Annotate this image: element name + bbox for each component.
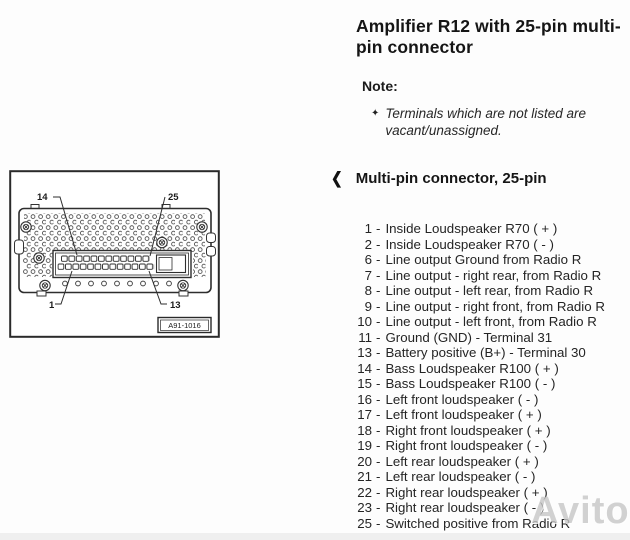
pin-number: 1 (350, 221, 372, 237)
pin-description: Line output - left front, from Radio R (385, 314, 596, 330)
callout-13: 13 (170, 300, 181, 311)
pin-separator: - (376, 392, 380, 408)
pin-separator: - (376, 314, 380, 330)
pin-number: 19 (350, 438, 372, 454)
pin-row: 8 - Line output - left rear, from Radio … (350, 283, 630, 299)
pin-number: 10 (350, 314, 372, 330)
pin-row: 9 - Line output - right front, from Radi… (350, 299, 630, 315)
pin-number: 23 (350, 500, 372, 516)
screw-icon (197, 222, 207, 232)
pin-number: 21 (350, 469, 372, 485)
pin-description: Right front loudspeaker ( + ) (385, 423, 550, 439)
left-arrow-icon: ❮ (331, 169, 343, 189)
pin-description: Right front loudspeaker ( - ) (385, 438, 547, 454)
pin-separator: - (376, 516, 380, 532)
pin-separator: - (376, 330, 380, 346)
pin-number: 11 (350, 330, 372, 346)
pin-separator: - (376, 361, 380, 377)
pin-description: Inside Loudspeaker R70 ( + ) (385, 221, 557, 237)
pin-row: 6 - Line output Ground from Radio R (350, 252, 630, 268)
scan-shadow-band (0, 533, 630, 540)
mounting-foot (37, 291, 46, 296)
pin-description: Right rear loudspeaker ( - ) (385, 500, 544, 516)
pin-separator: - (376, 438, 380, 454)
amplifier-diagram: 14 25 1 13 A91-1016 (9, 170, 220, 338)
pin-description: Line output - left rear, from Radio R (385, 283, 593, 299)
connector-pin-row-bottom (58, 264, 155, 271)
pin-number: 13 (350, 345, 372, 361)
connector-side-box-inner (159, 258, 172, 271)
note-item: ✦ Terminals which are not listed are vac… (371, 106, 596, 139)
pin-separator: - (376, 485, 380, 501)
callout-1: 1 (49, 300, 55, 311)
pin-description: Line output - right front, from Radio R (385, 299, 605, 315)
pin-description: Left rear loudspeaker ( - ) (385, 469, 535, 485)
pin-row: 20 - Left rear loudspeaker ( + ) (350, 454, 630, 470)
screw-icon (21, 222, 31, 232)
pin-row: 7 - Line output - right rear, from Radio… (350, 268, 630, 284)
pin-number: 2 (350, 237, 372, 253)
perforation-field (24, 213, 205, 256)
pin-row: 11 - Ground (GND) - Terminal 31 (350, 330, 630, 346)
pin-description: Inside Loudspeaker R70 ( - ) (385, 237, 554, 253)
pin-number: 25 (350, 516, 372, 532)
pin-description: Ground (GND) - Terminal 31 (385, 330, 552, 346)
pin-description: Switched positive from Radio R (385, 516, 570, 532)
pin-description: Bass Loudspeaker R100 ( + ) (385, 361, 558, 377)
edge-notch (207, 247, 216, 257)
note-label: Note: (362, 78, 398, 94)
perforation-row (59, 278, 181, 289)
pin-description: Battery positive (B+) - Terminal 30 (385, 345, 585, 361)
screw-icon (157, 237, 167, 247)
pin-number: 9 (350, 299, 372, 315)
pin-row: 23 - Right rear loudspeaker ( - ) (350, 500, 630, 516)
screw-icon (34, 253, 44, 263)
pin-separator: - (376, 283, 380, 299)
pin-row: 10 - Line output - left front, from Radi… (350, 314, 630, 330)
pin-number: 14 (350, 361, 372, 377)
pin-separator: - (376, 221, 380, 237)
edge-notch (15, 240, 24, 254)
pin-separator: - (376, 299, 380, 315)
callout-25: 25 (168, 192, 179, 203)
note-text: Terminals which are not listed are vacan… (385, 106, 596, 139)
pin-number: 20 (350, 454, 372, 470)
pin-description: Line output - right rear, from Radio R (385, 268, 601, 284)
section-heading-row: ❮ Multi-pin connector, 25-pin (331, 170, 621, 187)
edge-notch (207, 233, 216, 243)
section-heading: Multi-pin connector, 25-pin (356, 170, 547, 187)
pin-description: Left front loudspeaker ( + ) (385, 407, 541, 423)
scanned-manual-page: Amplifier R12 with 25-pin multi-pin conn… (0, 0, 630, 540)
pin-separator: - (376, 423, 380, 439)
pin-number: 6 (350, 252, 372, 268)
pin-row: 19 - Right front loudspeaker ( - ) (350, 438, 630, 454)
pin-row: 1 - Inside Loudspeaker R70 ( + ) (350, 221, 630, 237)
pin-row: 22 - Right rear loudspeaker ( + ) (350, 485, 630, 501)
pin-separator: - (376, 500, 380, 516)
pin-separator: - (376, 407, 380, 423)
pin-separator: - (376, 469, 380, 485)
pin-separator: - (376, 237, 380, 253)
pin-row: 17 - Left front loudspeaker ( + ) (350, 407, 630, 423)
diamond-bullet-icon: ✦ (371, 106, 379, 139)
pin-description: Left rear loudspeaker ( + ) (385, 454, 538, 470)
pin-row: 25 - Switched positive from Radio R (350, 516, 630, 532)
pin-assignment-list: 1 - Inside Loudspeaker R70 ( + ) 2 - Ins… (350, 221, 630, 531)
pin-row: 18 - Right front loudspeaker ( + ) (350, 423, 630, 439)
pin-row: 15 - Bass Loudspeaker R100 ( - ) (350, 376, 630, 392)
pin-number: 8 (350, 283, 372, 299)
pin-row: 13 - Battery positive (B+) - Terminal 30 (350, 345, 630, 361)
figure-label: A91-1016 (168, 321, 201, 330)
pin-number: 7 (350, 268, 372, 284)
pin-description: Right rear loudspeaker ( + ) (385, 485, 547, 501)
pin-separator: - (376, 454, 380, 470)
pin-row: 16 - Left front loudspeaker ( - ) (350, 392, 630, 408)
pin-description: Line output Ground from Radio R (385, 252, 581, 268)
mounting-foot (179, 291, 188, 296)
pin-number: 22 (350, 485, 372, 501)
pin-number: 16 (350, 392, 372, 408)
pin-description: Bass Loudspeaker R100 ( - ) (385, 376, 555, 392)
pin-number: 15 (350, 376, 372, 392)
pin-row: 14 - Bass Loudspeaker R100 ( + ) (350, 361, 630, 377)
pin-separator: - (376, 268, 380, 284)
perforation-field (193, 256, 206, 277)
page-title: Amplifier R12 with 25-pin multi-pin conn… (356, 16, 628, 57)
callout-14: 14 (37, 192, 48, 203)
pin-separator: - (376, 376, 380, 392)
pin-row: 21 - Left rear loudspeaker ( - ) (350, 469, 630, 485)
pin-separator: - (376, 345, 380, 361)
pin-number: 17 (350, 407, 372, 423)
pin-row: 2 - Inside Loudspeaker R70 ( - ) (350, 237, 630, 253)
screw-icon (178, 280, 188, 290)
pin-number: 18 (350, 423, 372, 439)
pin-separator: - (376, 252, 380, 268)
screw-icon (40, 280, 50, 290)
connector-pin-row-top (61, 256, 150, 263)
pin-description: Left front loudspeaker ( - ) (385, 392, 538, 408)
